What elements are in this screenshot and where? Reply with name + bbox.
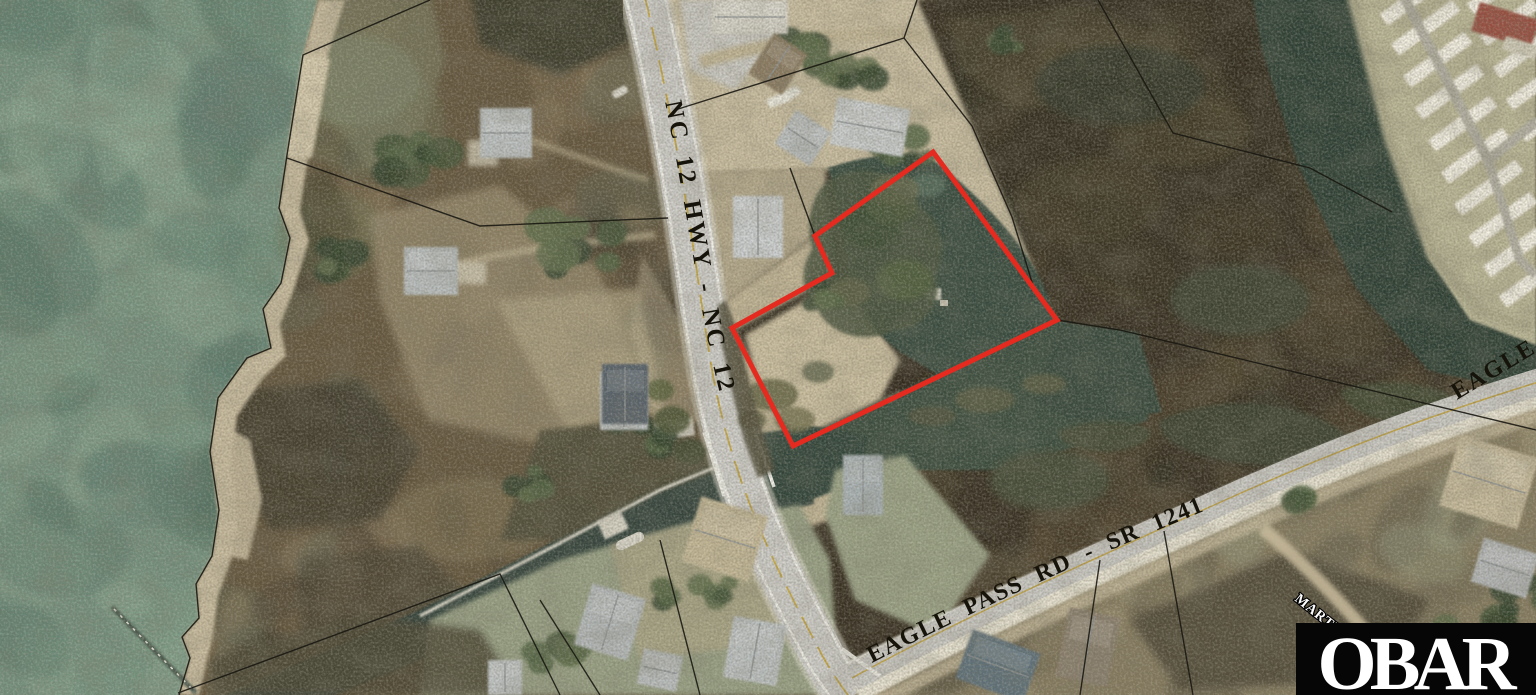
svg-text:OBAR: OBAR	[1318, 622, 1518, 695]
